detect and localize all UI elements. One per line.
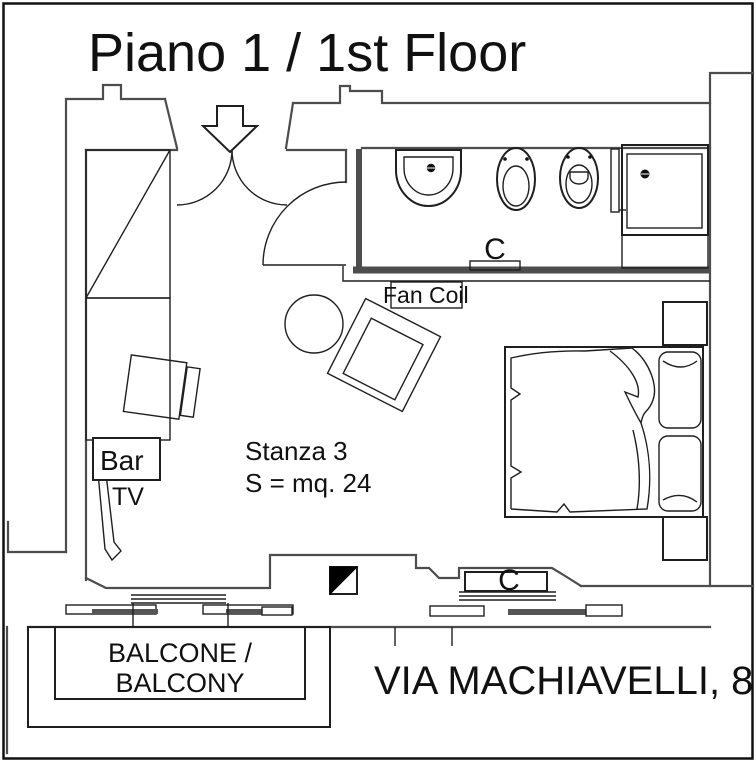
armchair xyxy=(328,299,441,412)
address-label: VIA MACHIAVELLI, 8 xyxy=(374,659,753,703)
room-name-label: Stanza 3 xyxy=(245,436,348,466)
nightstand-top xyxy=(663,302,707,345)
round-table xyxy=(285,295,343,353)
fan-coil-unit: Fan Coil xyxy=(383,282,469,308)
bathroom-sink xyxy=(396,150,461,206)
bidet xyxy=(497,148,535,210)
bed xyxy=(505,347,703,517)
pillow-bottom xyxy=(659,436,701,511)
tv-label: TV xyxy=(112,483,144,511)
entrance-double-door xyxy=(177,150,287,205)
floor-title: Piano 1 / 1st Floor xyxy=(88,23,526,83)
heater-label-top: C xyxy=(484,233,506,266)
bar-label: Bar xyxy=(100,445,144,476)
desk-chair xyxy=(123,355,200,421)
interior-walls xyxy=(86,148,710,588)
balcony-door-marker xyxy=(330,567,357,594)
pillow-top xyxy=(659,352,701,428)
interior-door xyxy=(263,182,346,265)
shower-partition xyxy=(611,149,626,212)
radiator-top: C xyxy=(470,233,520,270)
floor-plan-page: Piano 1 / 1st Floor xyxy=(0,0,756,768)
entrance-arrow-icon xyxy=(203,106,257,152)
floor-plan-drawing: Piano 1 / 1st Floor xyxy=(0,0,756,768)
wardrobe xyxy=(86,150,170,440)
bar-cabinet: Bar xyxy=(93,438,160,480)
balcony-label-line1: BALCONE / xyxy=(108,638,253,668)
balcony: BALCONE / BALCONY xyxy=(28,627,330,727)
toilet xyxy=(560,148,598,208)
nightstand-bottom xyxy=(663,517,707,560)
fan-coil-label: Fan Coil xyxy=(383,282,469,308)
room-area-label: S = mq. 24 xyxy=(245,468,371,498)
shower xyxy=(622,145,708,268)
balcony-label-line2: BALCONY xyxy=(115,668,244,698)
